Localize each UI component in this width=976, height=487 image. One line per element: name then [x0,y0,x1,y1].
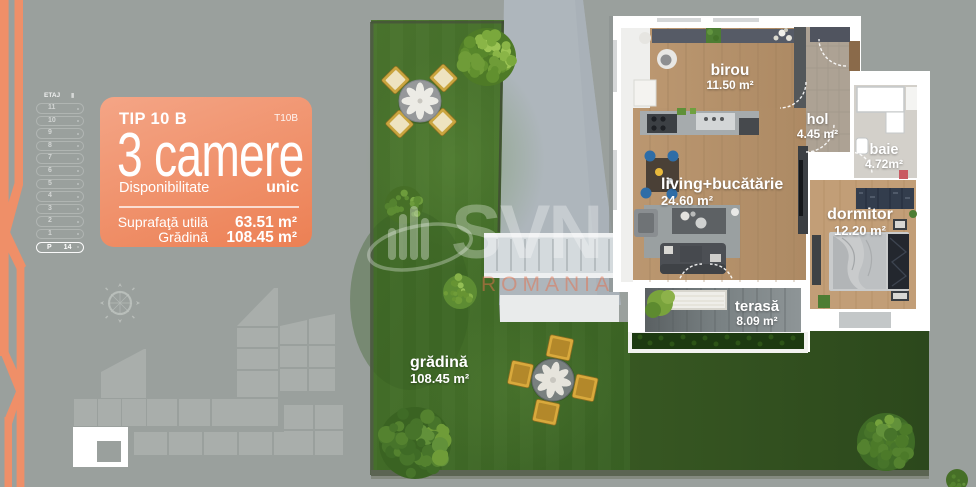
svg-text:ROMANIA: ROMANIA [481,273,614,296]
svg-text:SVN: SVN [451,190,601,275]
